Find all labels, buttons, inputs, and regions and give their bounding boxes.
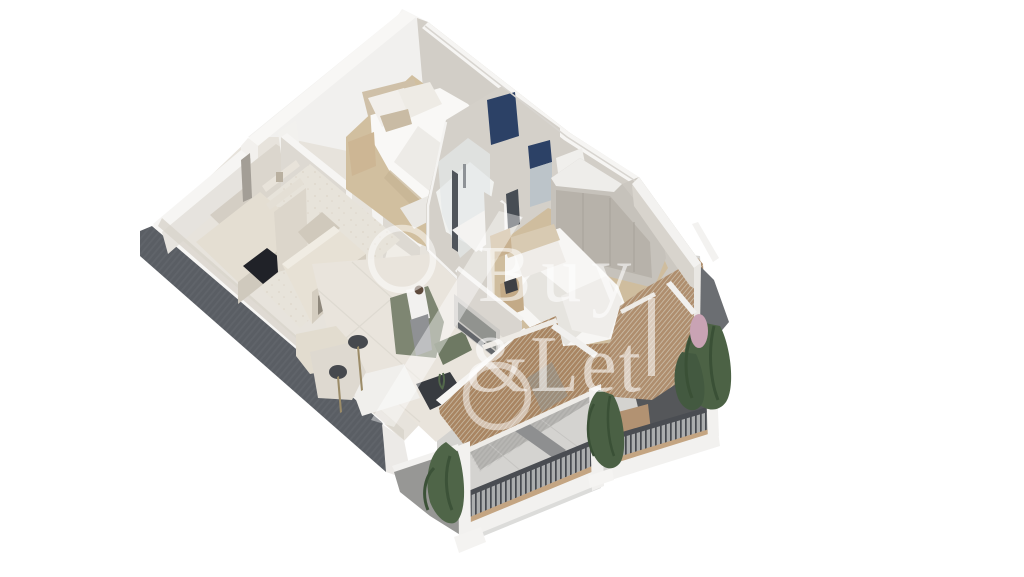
svg-text:&Let: &Let — [466, 321, 643, 409]
svg-text:Buy: Buy — [478, 231, 641, 319]
